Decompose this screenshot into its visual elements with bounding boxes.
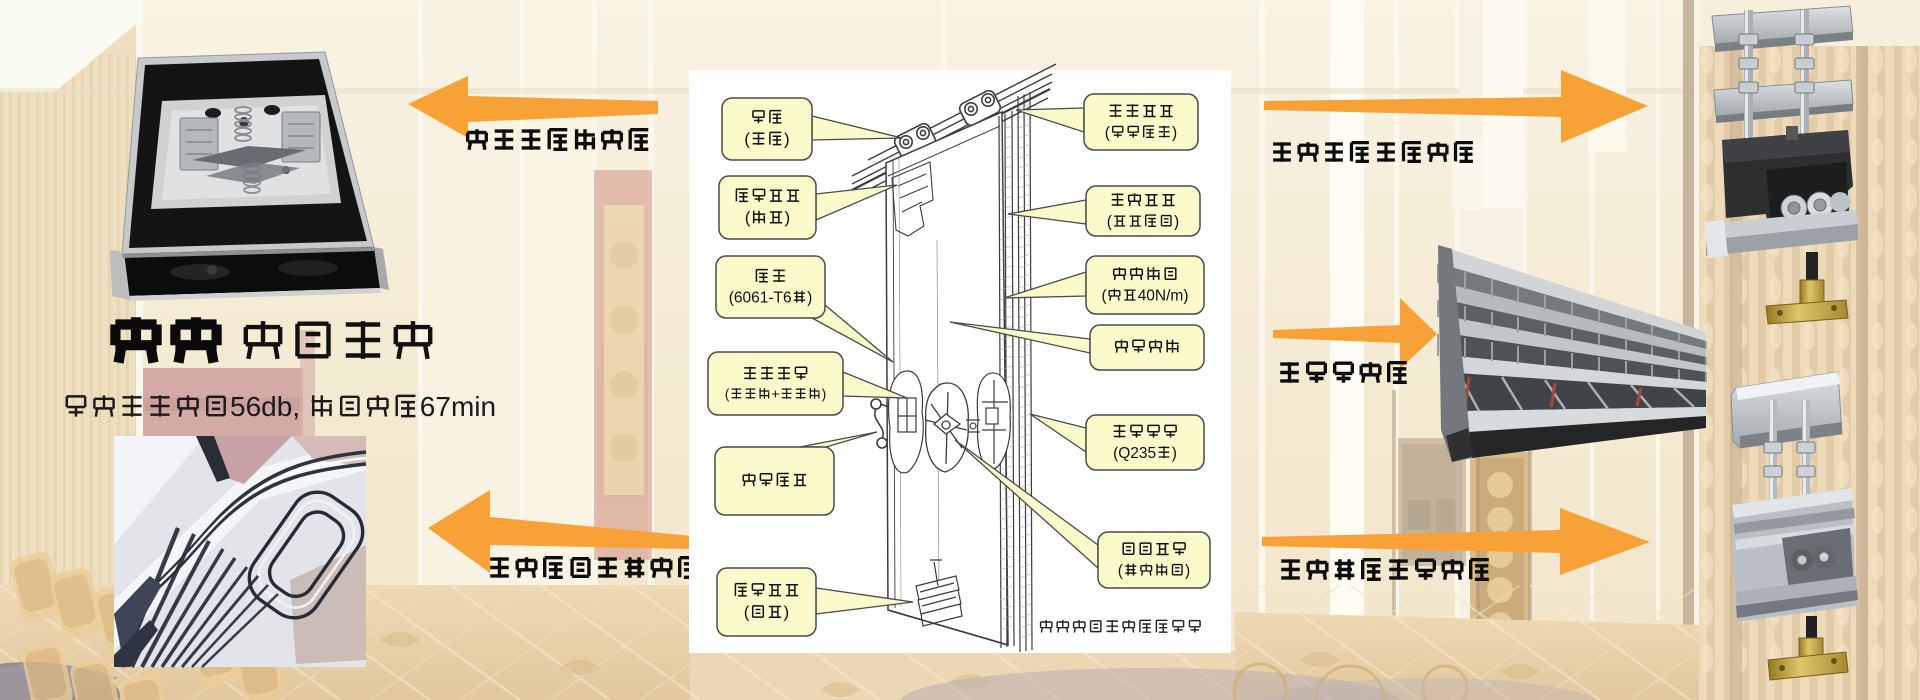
svg-text:(: ( <box>744 603 750 622</box>
svg-text:): ) <box>807 289 812 306</box>
svg-text:56db,: 56db, <box>230 391 300 422</box>
svg-text:40N/m): 40N/m) <box>1138 287 1189 304</box>
svg-text:): ) <box>822 386 827 402</box>
svg-text:(Q235: (Q235 <box>1113 445 1156 462</box>
svg-text:(: ( <box>725 386 730 402</box>
svg-text:(: ( <box>1102 287 1108 304</box>
svg-text:): ) <box>1172 445 1177 462</box>
svg-text:): ) <box>784 130 790 149</box>
svg-text:): ) <box>1172 124 1177 141</box>
svg-text:(: ( <box>1118 562 1124 579</box>
svg-text:+: + <box>771 386 779 402</box>
svg-text:): ) <box>1185 562 1190 579</box>
svg-text:(6061-T6: (6061-T6 <box>729 289 792 306</box>
svg-text:): ) <box>785 208 791 227</box>
svg-text:(: ( <box>1105 124 1111 141</box>
svg-text:(: ( <box>745 208 751 227</box>
svg-text:): ) <box>1174 213 1179 230</box>
svg-text:): ) <box>784 603 790 622</box>
svg-text:(: ( <box>1107 213 1113 230</box>
svg-text:67min: 67min <box>420 391 496 422</box>
svg-text:(: ( <box>744 130 750 149</box>
